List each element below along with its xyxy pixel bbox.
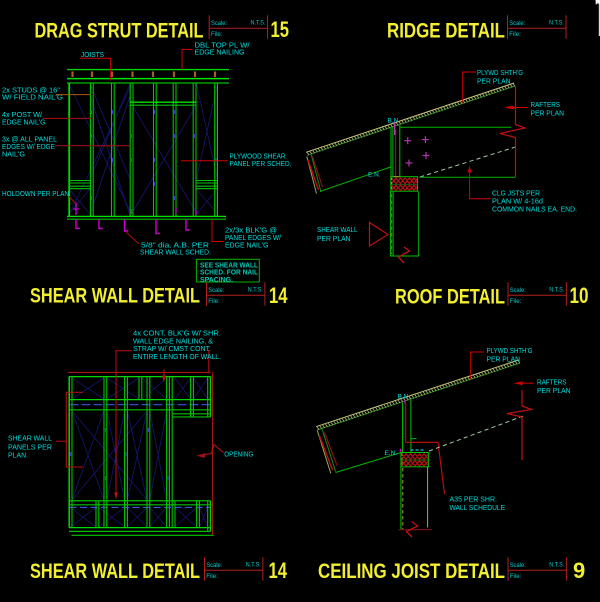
svg-text:Scale:: Scale: [509, 20, 525, 27]
svg-text:W/ FIELD NAIL'G: W/ FIELD NAIL'G [2, 93, 63, 102]
svg-text:HOLDOWN PER PLAN: HOLDOWN PER PLAN [2, 189, 69, 198]
svg-text:9: 9 [573, 558, 585, 583]
svg-text:EDGE NAILING: EDGE NAILING [195, 48, 245, 57]
svg-text:N.T.S.: N.T.S. [549, 19, 564, 26]
svg-text:SPACING.: SPACING. [200, 275, 233, 284]
svg-text:ENTIRE LENGTH OF WALL.: ENTIRE LENGTH OF WALL. [133, 352, 221, 361]
svg-text:RIDGE DETAIL: RIDGE DETAIL [387, 19, 505, 42]
svg-text:10: 10 [570, 283, 589, 308]
svg-text:File:: File: [208, 298, 220, 305]
svg-text:SHEAR WALL: SHEAR WALL [317, 225, 358, 234]
svg-text:File:: File: [510, 298, 522, 305]
svg-text:DRAG STRUT DETAIL: DRAG STRUT DETAIL [35, 19, 204, 42]
svg-text:SHEAR WALL SCHED.: SHEAR WALL SCHED. [140, 248, 211, 257]
svg-text:File:: File: [206, 573, 218, 580]
svg-text:SHEAR WALL: SHEAR WALL [8, 433, 52, 442]
svg-text:COMMON NAILS EA. END.: COMMON NAILS EA. END. [492, 204, 577, 213]
svg-text:WALL SCHEDULE: WALL SCHEDULE [450, 503, 506, 512]
svg-text:E.N.: E.N. [385, 450, 398, 457]
svg-text:EDGE NAIL'G: EDGE NAIL'G [2, 117, 46, 126]
svg-text:15: 15 [271, 17, 290, 42]
svg-text:File:: File: [211, 31, 223, 38]
svg-text:PER PLAN: PER PLAN [477, 76, 511, 85]
svg-text:Scale:: Scale: [510, 287, 526, 294]
svg-text:N.T.S.: N.T.S. [549, 561, 564, 568]
svg-text:PER PLAN: PER PLAN [487, 354, 521, 363]
svg-text:B.N.: B.N. [398, 394, 411, 401]
svg-text:E.N.: E.N. [368, 171, 381, 178]
svg-text:OPENING: OPENING [224, 450, 253, 459]
svg-text:N.T.S.: N.T.S. [246, 561, 261, 568]
svg-text:B.N.: B.N. [388, 117, 401, 124]
svg-text:PER PLAN: PER PLAN [317, 234, 351, 243]
svg-text:14: 14 [269, 558, 288, 583]
svg-text:Scale:: Scale: [208, 287, 224, 294]
svg-text:N.T.S.: N.T.S. [549, 286, 564, 293]
svg-text:EDGE NAIL'G: EDGE NAIL'G [225, 240, 269, 249]
svg-text:Scale:: Scale: [211, 20, 227, 27]
svg-text:SHEAR WALL DETAIL: SHEAR WALL DETAIL [30, 560, 200, 583]
svg-text:File:: File: [509, 31, 521, 38]
svg-text:PER PLAN: PER PLAN [537, 386, 571, 395]
svg-text:N.T.S.: N.T.S. [251, 19, 266, 26]
svg-text:Scale:: Scale: [510, 562, 526, 569]
svg-text:PER PLAN: PER PLAN [531, 109, 565, 118]
svg-text:JOISTS: JOISTS [81, 50, 104, 59]
svg-text:ROOF DETAIL: ROOF DETAIL [395, 286, 505, 309]
svg-text:File:: File: [510, 573, 522, 580]
svg-text:SHEAR WALL DETAIL: SHEAR WALL DETAIL [30, 284, 200, 307]
svg-text:Scale:: Scale: [206, 562, 222, 569]
svg-text:N.T.S.: N.T.S. [248, 286, 263, 293]
svg-text:14: 14 [269, 283, 288, 308]
svg-text:PLAN.: PLAN. [8, 450, 28, 459]
svg-text:PANEL PER SCHED.: PANEL PER SCHED. [230, 159, 292, 168]
svg-text:NAIL'G: NAIL'G [2, 150, 25, 159]
svg-text:CEILING JOIST DETAIL: CEILING JOIST DETAIL [318, 560, 505, 583]
